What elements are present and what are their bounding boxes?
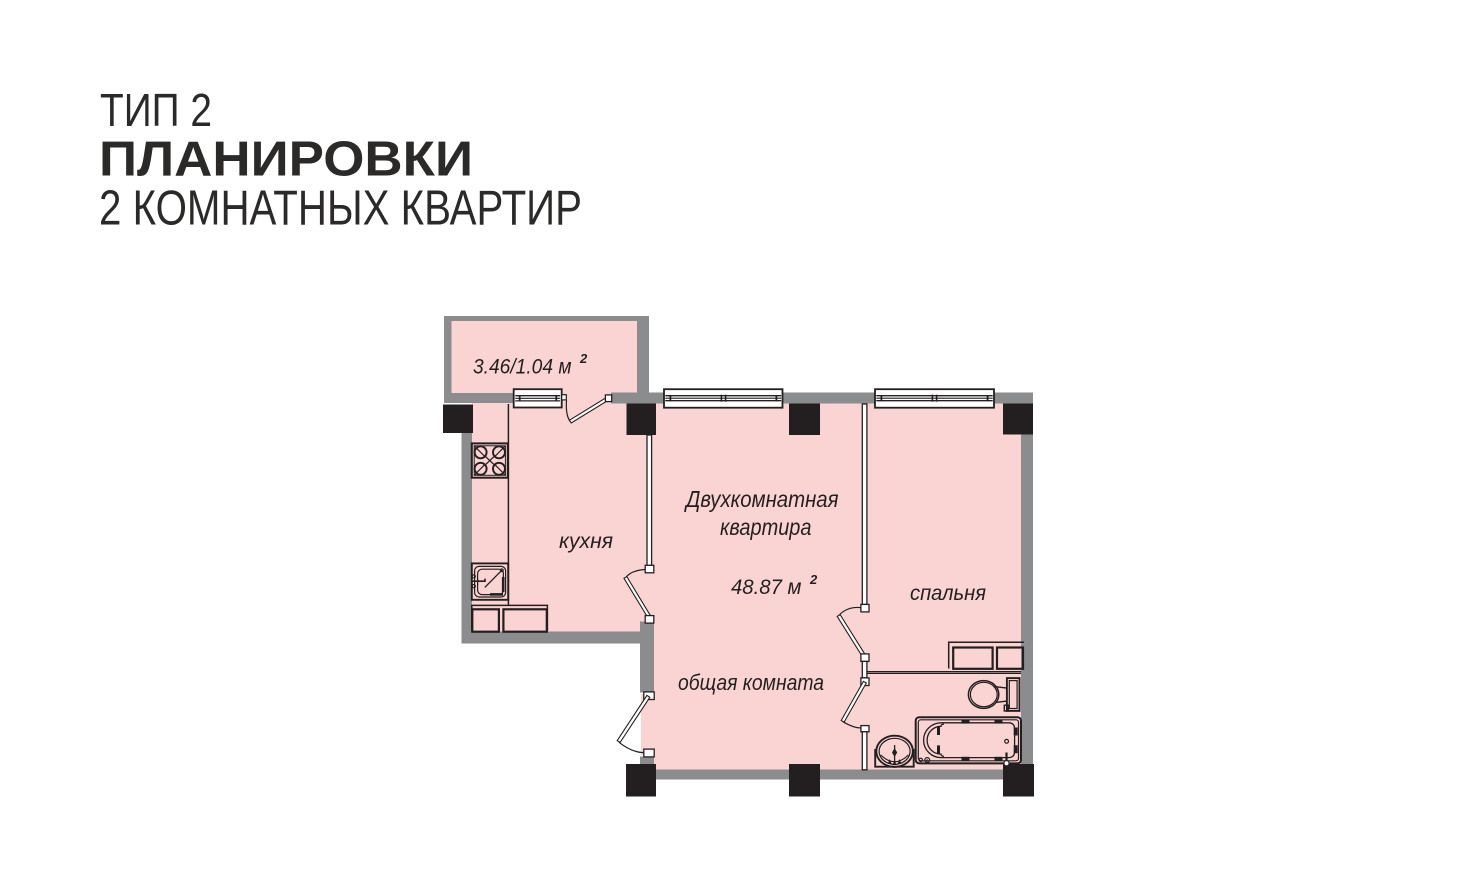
svg-text:2 КОМНАТНЫХ КВАРТИР: 2 КОМНАТНЫХ КВАРТИР [99,182,582,236]
svg-text:48.87 м: 48.87 м [731,576,802,599]
svg-text:2: 2 [579,351,588,366]
svg-text:3.46/1.04 м: 3.46/1.04 м [473,356,572,379]
svg-text:2: 2 [809,572,818,587]
svg-text:кухня: кухня [559,529,614,553]
svg-text:общая комната: общая комната [678,670,824,695]
svg-text:квартира: квартира [720,514,812,540]
svg-text:ТИП 2: ТИП 2 [100,84,212,136]
svg-text:ПЛАНИРОВКИ: ПЛАНИРОВКИ [99,132,473,186]
svg-text:Двухкомнатная: Двухкомнатная [683,486,838,512]
svg-text:спальня: спальня [910,582,986,605]
